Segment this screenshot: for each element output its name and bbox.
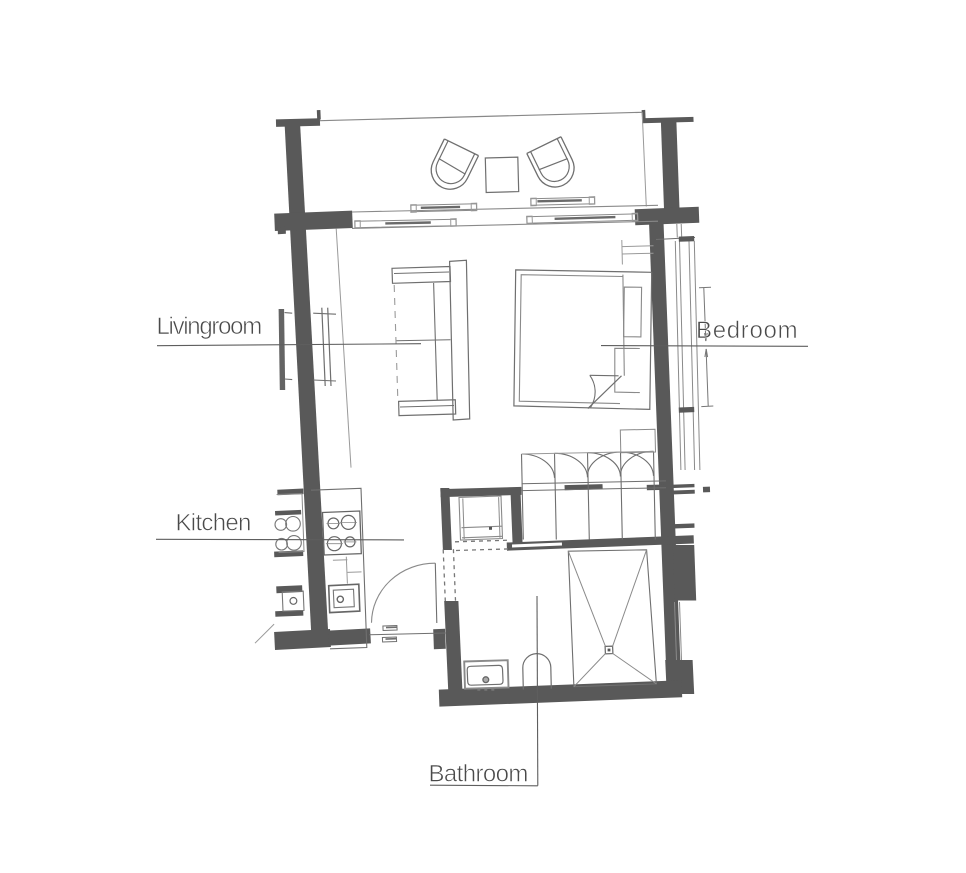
svg-text:Kitchen: Kitchen: [176, 510, 251, 537]
svg-text:Bathroom: Bathroom: [429, 761, 528, 788]
svg-text:Livingroom: Livingroom: [157, 313, 262, 340]
svg-text:Bedroom: Bedroom: [696, 317, 798, 344]
